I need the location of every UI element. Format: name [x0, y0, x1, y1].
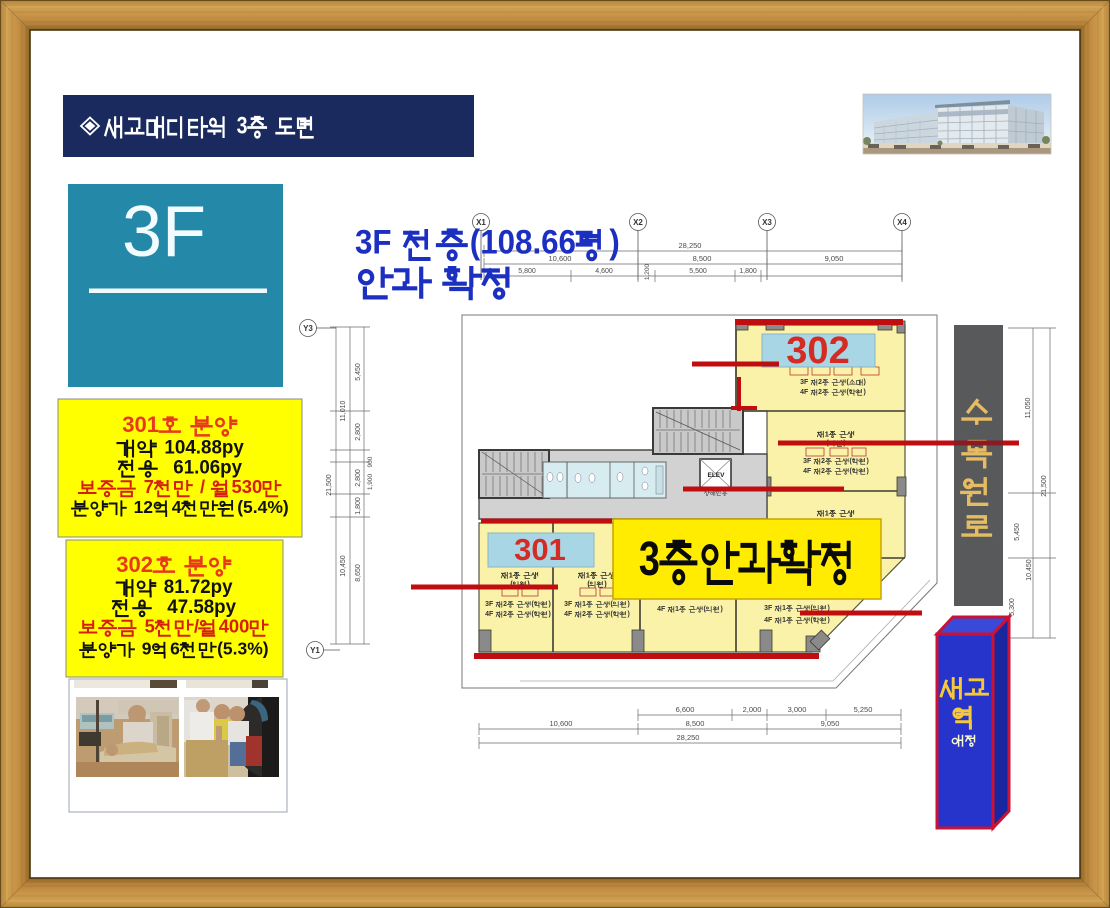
svg-text:1: 1	[825, 429, 829, 438]
svg-text:3,000: 3,000	[788, 705, 807, 714]
svg-text:10,450: 10,450	[340, 555, 347, 577]
svg-text:9,050: 9,050	[821, 719, 840, 728]
svg-text:3: 3	[237, 112, 248, 139]
svg-text:2,000: 2,000	[743, 705, 762, 714]
svg-text:12: 12	[134, 497, 154, 517]
svg-text:2: 2	[821, 458, 825, 465]
svg-text:1,800: 1,800	[739, 268, 757, 275]
svg-text:(5.3%): (5.3%)	[217, 638, 269, 658]
svg-text:): )	[549, 601, 551, 608]
svg-text:): )	[628, 611, 630, 618]
svg-text:(108.66: (108.66	[470, 222, 576, 261]
svg-text:21,500: 21,500	[326, 474, 333, 496]
svg-text:5,300: 5,300	[1009, 598, 1016, 616]
svg-text:11,010: 11,010	[340, 400, 347, 421]
svg-text:302: 302	[786, 330, 849, 372]
svg-text:3F: 3F	[485, 601, 493, 608]
svg-text:): )	[867, 458, 869, 465]
svg-text:4F: 4F	[485, 611, 493, 618]
svg-text:2: 2	[582, 611, 586, 618]
svg-text:3F: 3F	[764, 605, 772, 612]
svg-text:5,450: 5,450	[355, 363, 362, 381]
svg-text:): )	[828, 617, 830, 624]
svg-text:900: 900	[367, 456, 374, 467]
svg-text:): )	[864, 379, 866, 386]
svg-text:2: 2	[818, 379, 822, 386]
svg-text:2,800: 2,800	[355, 469, 362, 487]
svg-text:): )	[628, 601, 630, 608]
svg-text:301: 301	[122, 412, 159, 437]
svg-text:4F: 4F	[564, 611, 572, 618]
svg-text:104.88py: 104.88py	[164, 438, 244, 459]
svg-text:(5.4%): (5.4%)	[237, 497, 289, 517]
svg-text:1: 1	[675, 606, 679, 613]
svg-text:/: /	[194, 616, 199, 637]
svg-text:11,050: 11,050	[1025, 397, 1032, 418]
svg-text:ELEV: ELEV	[708, 472, 726, 479]
svg-text:4F: 4F	[764, 617, 772, 624]
svg-text:): )	[867, 468, 869, 475]
svg-text:530: 530	[232, 476, 263, 497]
svg-text:9,050: 9,050	[825, 254, 844, 263]
svg-text:): )	[864, 389, 866, 396]
svg-text:1: 1	[782, 617, 786, 624]
svg-text:21,500: 21,500	[1041, 475, 1048, 497]
svg-text:4F: 4F	[657, 606, 665, 613]
svg-text:7: 7	[144, 476, 154, 497]
svg-text:8,650: 8,650	[355, 564, 362, 582]
svg-text:3: 3	[639, 533, 660, 586]
svg-text:2,800: 2,800	[355, 423, 362, 441]
svg-text:3F: 3F	[122, 192, 206, 272]
svg-text:5,800: 5,800	[518, 268, 536, 275]
svg-text:2: 2	[503, 611, 507, 618]
svg-text:5,500: 5,500	[689, 268, 707, 275]
svg-text:1,800: 1,800	[355, 497, 362, 515]
svg-text:Y3: Y3	[303, 324, 313, 333]
svg-text:4,600: 4,600	[595, 268, 613, 275]
svg-text:5,250: 5,250	[854, 705, 873, 714]
svg-text:4F: 4F	[800, 389, 808, 396]
svg-text:1: 1	[509, 570, 513, 579]
svg-text:1: 1	[782, 605, 786, 612]
svg-text:81.72py: 81.72py	[164, 577, 233, 598]
svg-text:2: 2	[503, 601, 507, 608]
svg-text:6: 6	[170, 638, 180, 658]
svg-text:X2: X2	[633, 218, 643, 227]
svg-text:28,250: 28,250	[679, 241, 702, 250]
svg-text:10,600: 10,600	[550, 719, 573, 728]
svg-text:/: /	[200, 476, 205, 497]
svg-text:8,500: 8,500	[686, 719, 705, 728]
svg-text:6,600: 6,600	[676, 705, 695, 714]
svg-text:5: 5	[145, 616, 155, 637]
svg-text:): )	[604, 581, 606, 588]
svg-text:28,250: 28,250	[677, 733, 700, 742]
svg-text:1: 1	[586, 570, 590, 579]
svg-text:3F: 3F	[564, 601, 572, 608]
svg-text:X3: X3	[762, 218, 772, 227]
svg-text:1,900: 1,900	[367, 473, 374, 490]
svg-text:Y1: Y1	[310, 646, 320, 655]
svg-text:1: 1	[825, 508, 829, 517]
svg-text:400: 400	[219, 616, 250, 637]
svg-text:): )	[721, 606, 723, 613]
svg-text:1,200: 1,200	[644, 263, 651, 280]
svg-text:9: 9	[142, 638, 152, 658]
svg-text:1: 1	[582, 601, 586, 608]
svg-text:4: 4	[172, 497, 182, 517]
svg-text:3F: 3F	[803, 458, 811, 465]
svg-text:302: 302	[116, 552, 153, 577]
svg-text:8,500: 8,500	[693, 254, 712, 263]
svg-text:): )	[549, 611, 551, 618]
svg-text:10,450: 10,450	[1026, 559, 1033, 581]
svg-text:X4: X4	[897, 218, 907, 227]
svg-text:): )	[609, 222, 619, 261]
svg-text:3F: 3F	[355, 222, 392, 261]
svg-text:2: 2	[818, 389, 822, 396]
svg-text:301: 301	[514, 532, 566, 567]
svg-text:3F: 3F	[800, 379, 808, 386]
svg-text:2: 2	[821, 468, 825, 475]
svg-text:5,450: 5,450	[1014, 523, 1021, 541]
svg-text:4F: 4F	[803, 468, 811, 475]
